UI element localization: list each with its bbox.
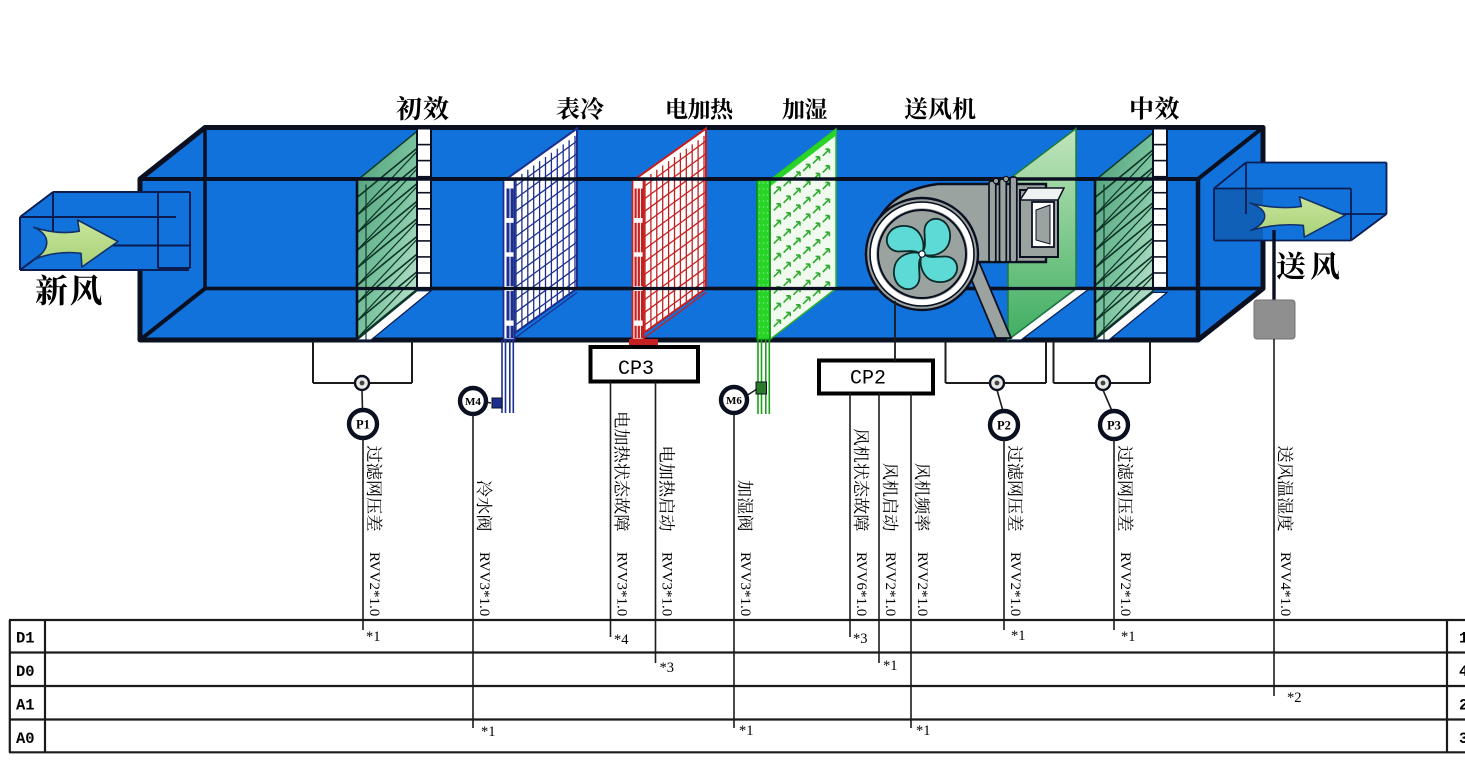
svg-text:M4: M4 (465, 396, 481, 408)
svg-text:M6: M6 (726, 395, 742, 407)
svg-text:4: 4 (1459, 663, 1465, 681)
svg-text:RVV2*1.0: RVV2*1.0 (366, 552, 382, 616)
svg-text:RVV3*1.0: RVV3*1.0 (614, 552, 630, 616)
svg-text:*1: *1 (1011, 628, 1026, 644)
svg-text:*1: *1 (883, 658, 898, 674)
svg-text:2: 2 (1459, 697, 1465, 715)
svg-text:A1: A1 (16, 697, 35, 715)
svg-text:P2: P2 (997, 419, 1011, 433)
svg-text:3: 3 (1459, 730, 1465, 748)
svg-text:D1: D1 (16, 630, 35, 648)
svg-text:*3: *3 (660, 660, 675, 676)
svg-text:*1: *1 (1121, 629, 1136, 645)
svg-text:RVV2*1.0: RVV2*1.0 (1117, 552, 1133, 616)
svg-text:RVV3*1.0: RVV3*1.0 (737, 552, 753, 616)
svg-text:RVV2*1.0: RVV2*1.0 (882, 552, 898, 616)
svg-text:D0: D0 (16, 663, 35, 681)
svg-text:RVV2*1.0: RVV2*1.0 (914, 552, 930, 616)
svg-text:*3: *3 (853, 631, 868, 647)
svg-text:*1: *1 (366, 629, 381, 645)
svg-text:A0: A0 (16, 730, 35, 748)
svg-text:*1: *1 (916, 723, 931, 739)
svg-text:*1: *1 (481, 724, 496, 740)
svg-text:RVV6*1.0: RVV6*1.0 (853, 552, 869, 616)
svg-text:*1: *1 (739, 723, 754, 739)
svg-text:CP2: CP2 (850, 368, 886, 391)
svg-text:*4: *4 (614, 632, 629, 648)
svg-text:P3: P3 (1107, 419, 1121, 433)
svg-text:CP3: CP3 (618, 358, 654, 381)
svg-text:P1: P1 (356, 418, 370, 432)
svg-text:RVV2*1.0: RVV2*1.0 (1007, 552, 1023, 616)
svg-text:RVV4*1.0: RVV4*1.0 (1277, 552, 1293, 616)
svg-text:*2: *2 (1287, 690, 1302, 706)
svg-text:1: 1 (1459, 630, 1465, 648)
svg-text:RVV3*1.0: RVV3*1.0 (476, 552, 492, 616)
svg-text:RVV3*1.0: RVV3*1.0 (659, 552, 675, 616)
